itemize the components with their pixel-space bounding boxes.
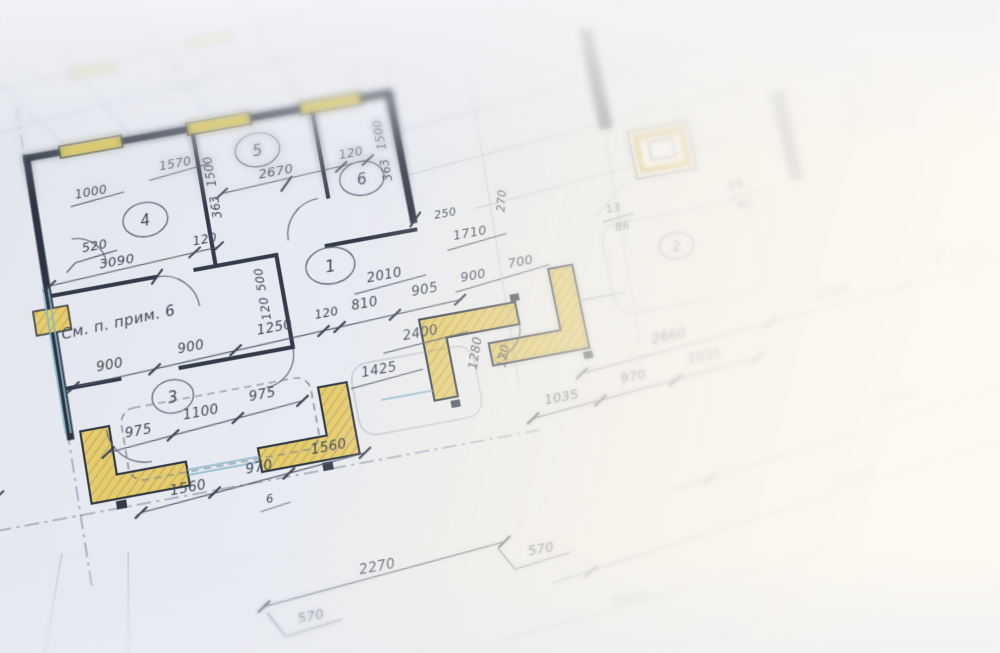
room-1-number: 1 — [323, 256, 337, 277]
upper-annex-faint — [0, 0, 401, 168]
window-block — [59, 135, 123, 158]
svg-text:120: 120 — [338, 144, 365, 162]
room-6-number: 6 — [355, 170, 368, 189]
svg-text:570: 570 — [527, 538, 556, 558]
svg-text:363: 363 — [207, 194, 225, 219]
svg-text:975: 975 — [124, 422, 153, 442]
svg-text:900: 900 — [843, 79, 856, 100]
vestibule-walls — [338, 257, 642, 438]
room-4-number: 4 — [139, 211, 152, 230]
room-2-number: 2 — [671, 239, 683, 255]
svg-text:970: 970 — [619, 366, 648, 386]
svg-text:970: 970 — [244, 458, 273, 478]
svg-text:25760: 25760 — [829, 464, 877, 493]
svg-text:1035: 1035 — [686, 345, 723, 366]
svg-text:270: 270 — [494, 189, 509, 212]
svg-text:1100: 1100 — [182, 402, 220, 424]
blueprint-photo: 4 5 6 1 3 2 См. п. прим. 6 18 — [0, 0, 1000, 653]
svg-text:7560: 7560 — [879, 385, 918, 410]
svg-text:86: 86 — [614, 218, 632, 233]
svg-text:6410: 6410 — [612, 587, 648, 608]
floor-plan: 4 5 6 1 3 2 См. п. прим. 6 18 — [0, 0, 1000, 653]
svg-text:1000: 1000 — [860, 59, 873, 87]
svg-text:810: 810 — [929, 240, 949, 266]
svg-text:500: 500 — [251, 267, 269, 293]
svg-text:2010: 2010 — [366, 265, 404, 286]
svg-text:6: 6 — [265, 491, 275, 506]
dim-room5: 2670 120 1500 363 1500 363 500 120 — [199, 119, 417, 327]
svg-text:975: 975 — [248, 385, 277, 405]
svg-text:2270: 2270 — [358, 556, 397, 578]
svg-text:120: 120 — [314, 304, 340, 322]
svg-text:1570: 1570 — [158, 154, 193, 173]
svg-text:1500: 1500 — [370, 119, 390, 151]
plan-note: См. п. прим. 6 — [60, 302, 177, 344]
svg-text:120: 120 — [494, 343, 512, 369]
svg-text:250: 250 — [433, 205, 458, 222]
svg-text:700: 700 — [506, 252, 534, 271]
svg-text:570: 570 — [296, 606, 325, 627]
svg-text:900: 900 — [459, 265, 487, 284]
svg-text:1280: 1280 — [465, 335, 484, 370]
svg-text:29: 29 — [726, 176, 745, 193]
drawing-sheet: 4 5 6 1 3 2 См. п. прим. 6 18 — [0, 0, 1000, 653]
room-5-number: 5 — [251, 141, 264, 160]
svg-text:1000: 1000 — [74, 182, 109, 201]
svg-text:13: 13 — [605, 201, 622, 216]
dim-chain-left: 1075 3270 1080 3270 4400 105 — [0, 157, 15, 583]
svg-text:1700: 1700 — [813, 282, 851, 303]
room-3-number: 3 — [166, 387, 179, 407]
svg-text:вп: вп — [737, 196, 754, 211]
svg-text:900: 900 — [176, 338, 205, 358]
svg-text:2660: 2660 — [650, 326, 688, 347]
svg-text:520: 520 — [81, 236, 109, 255]
svg-text:900: 900 — [95, 356, 124, 376]
svg-text:810: 810 — [350, 294, 379, 314]
window-block — [298, 92, 362, 115]
svg-text:2027: 2027 — [841, 102, 866, 136]
vent-shaft — [581, 121, 704, 217]
window-block — [186, 112, 252, 135]
svg-text:120: 120 — [256, 296, 274, 322]
faint-mark: 18 — [133, 0, 150, 3]
svg-text:1035: 1035 — [543, 386, 580, 407]
svg-text:363: 363 — [377, 157, 395, 182]
svg-text:905: 905 — [410, 280, 439, 300]
